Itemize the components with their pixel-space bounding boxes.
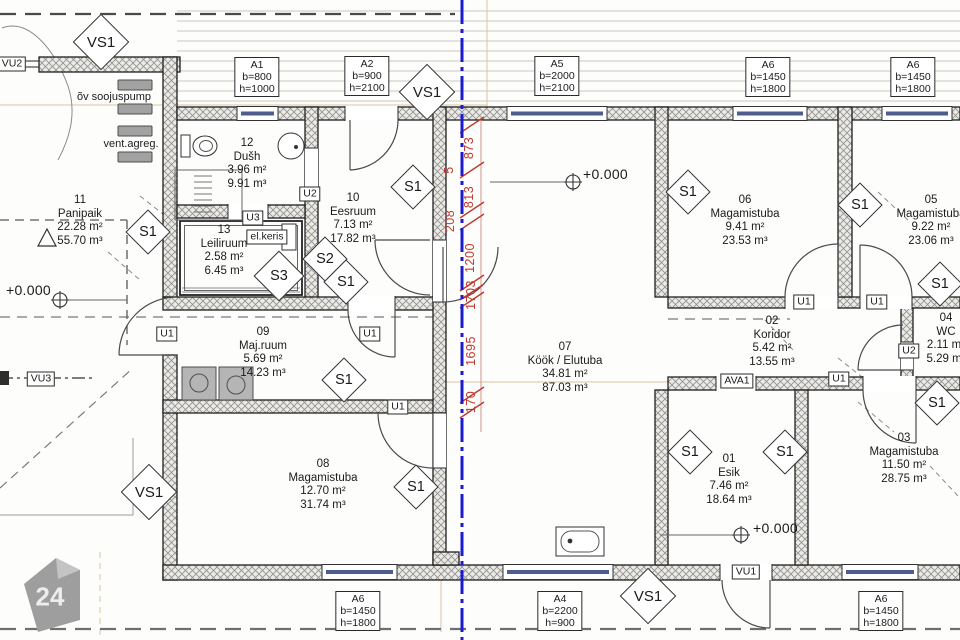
room-volume: 5.29 m³ xyxy=(927,353,960,367)
window-height: h=1800 xyxy=(863,617,898,629)
room-number: 10 xyxy=(330,192,376,206)
window-code: A6 xyxy=(340,593,375,605)
room-name: Magamistuba xyxy=(869,446,938,460)
room-area: 2.58 m² xyxy=(201,251,248,265)
room-number: 12 xyxy=(228,137,267,151)
room-name: Leiliruum xyxy=(201,238,248,252)
sauna-heater-label: el.keris xyxy=(246,230,287,245)
room-volume: 13.55 m³ xyxy=(749,356,794,370)
door-tag-u1-eesruum: U1 xyxy=(359,327,380,342)
door-tag-u1-west: U1 xyxy=(156,327,177,342)
room-number: 08 xyxy=(288,458,357,472)
window-tag-a1: A1 b=800 h=1000 xyxy=(234,57,279,97)
room-name: Koridor xyxy=(749,329,794,343)
room-name: Magamistuba xyxy=(896,208,960,222)
room-volume: 28.75 m³ xyxy=(869,473,938,487)
dimension-813: 813 xyxy=(462,186,476,208)
window-height: h=900 xyxy=(542,617,577,629)
room-name: Dušh xyxy=(228,151,267,165)
duct-tag-vu3: VU3 xyxy=(27,372,55,387)
room-label-kook-elutuba: 07 Köök / Elutuba 34.81 m² 87.03 m³ xyxy=(528,341,603,395)
door-tag-u1-koridor-05: U1 xyxy=(866,295,887,310)
room-label-wc: 04 WC 2.11 m² 5.29 m³ xyxy=(927,312,960,366)
window-height: h=2100 xyxy=(349,82,384,94)
dimension-lines xyxy=(460,117,484,432)
room-area: 7.13 m² xyxy=(330,219,376,233)
toilet-icon xyxy=(181,135,217,157)
door-tag-u1-koridor-03: U1 xyxy=(828,372,849,387)
room-area: 22.28 m² xyxy=(57,221,102,235)
window-code: A1 xyxy=(239,59,274,71)
room-number: 07 xyxy=(528,341,603,355)
room-label-leiliruum: 13 Leiliruum 2.58 m² 6.45 m³ xyxy=(201,224,248,278)
room-area: 9.22 m² xyxy=(896,221,960,235)
room-number: 01 xyxy=(706,453,751,467)
room-name: Panipaik xyxy=(57,208,102,222)
dimension-873: 873 xyxy=(462,137,476,159)
room-name: Maj.ruum xyxy=(239,340,287,354)
window-width: b=2000 xyxy=(539,70,574,82)
window-code: A6 xyxy=(863,593,898,605)
door-tag-u1-majruum: U1 xyxy=(387,400,408,415)
elevation-label: +0.000 xyxy=(753,520,798,536)
window-height: h=1800 xyxy=(750,83,785,95)
room-area: 11.50 m² xyxy=(869,459,938,473)
door-tag-u1-koridor-06: U1 xyxy=(793,295,814,310)
window-tag-a4: A4 b=2200 h=900 xyxy=(537,591,582,631)
dimension-1695: 1695 xyxy=(464,336,478,366)
window-height: h=2100 xyxy=(539,82,574,94)
room-volume: 9.91 m³ xyxy=(228,178,267,192)
room-number: 13 xyxy=(201,224,248,238)
dimension-5: 5 xyxy=(442,166,456,173)
room-number: 02 xyxy=(749,315,794,329)
window-width: b=900 xyxy=(349,70,384,82)
room-area: 2.11 m² xyxy=(927,339,960,353)
room-label-magamistuba-06: 06 Magamistuba 9.41 m² 23.53 m³ xyxy=(710,194,779,248)
panipaik-triangle xyxy=(38,229,56,246)
dimension-1703: 1703 xyxy=(464,280,478,310)
room-number: 03 xyxy=(869,432,938,446)
window-code: A5 xyxy=(539,58,574,70)
room-name: Magamistuba xyxy=(288,472,357,486)
door-tag-u2-dush: U2 xyxy=(299,187,320,202)
room-label-esik: 01 Esik 7.46 m² 18.64 m³ xyxy=(706,453,751,507)
shower-icon xyxy=(278,133,304,159)
room-label-panipaik: 11 Panipaik 22.28 m² 55.70 m³ xyxy=(57,194,102,248)
elevation-label: +0.000 xyxy=(583,166,628,182)
kitchen-sink-icon xyxy=(556,527,604,556)
room-area: 7.46 m² xyxy=(706,480,751,494)
window-width: b=1450 xyxy=(895,71,930,83)
room-volume: 55.70 m³ xyxy=(57,235,102,249)
window-tag-a6-bottom-left: A6 b=1450 h=1800 xyxy=(335,591,380,631)
room-number: 11 xyxy=(57,194,102,208)
window-code: A2 xyxy=(349,58,384,70)
room-name: Esik xyxy=(706,467,751,481)
room-label-majruum: 09 Maj.ruum 5.69 m² 14.23 m³ xyxy=(239,326,287,380)
room-area: 5.69 m² xyxy=(239,353,287,367)
room-label-magamistuba-05: 05 Magamistuba 9.22 m² 23.06 m³ xyxy=(896,194,960,248)
room-number: 05 xyxy=(896,194,960,208)
window-tag-a2: A2 b=900 h=2100 xyxy=(344,56,389,96)
room-area: 34.81 m² xyxy=(528,368,603,382)
heat-pump-label: õv soojuspump xyxy=(77,91,151,103)
window-code: A6 xyxy=(895,59,930,71)
vent-unit-label: vent.agreg. xyxy=(103,138,158,150)
duct-tag-vu2: VU2 xyxy=(0,57,26,72)
room-label-eesruum: 10 Eesruum 7.13 m² 17.82 m³ xyxy=(330,192,376,246)
window-height: h=1800 xyxy=(340,617,375,629)
window-height: h=1800 xyxy=(895,83,930,95)
dimension-170: 170 xyxy=(464,391,478,413)
room-label-koridor: 02 Koridor 5.42 m² 13.55 m³ xyxy=(749,315,794,369)
window-tag-a6-bottom-right: A6 b=1450 h=1800 xyxy=(858,591,903,631)
room-number: 06 xyxy=(710,194,779,208)
room-area: 3.96 m² xyxy=(228,164,267,178)
room-name: WC xyxy=(927,326,960,340)
window-width: b=1450 xyxy=(750,71,785,83)
room-area: 12.70 m² xyxy=(288,485,357,499)
window-code: A4 xyxy=(542,593,577,605)
window-code: A6 xyxy=(750,59,785,71)
dimension-1200: 1200 xyxy=(463,243,477,273)
room-volume: 14.23 m³ xyxy=(239,367,287,381)
window-tag-a6-top-right: A6 b=1450 h=1800 xyxy=(890,57,935,97)
duct-tag-vu1: VU1 xyxy=(732,565,760,580)
window-width: b=1450 xyxy=(340,605,375,617)
door-tag-u3: U3 xyxy=(242,211,263,226)
room-volume: 6.45 m³ xyxy=(201,265,248,279)
opening-tag-ava1: AVA1 xyxy=(720,374,753,389)
window-tag-a6-top-left: A6 b=1450 h=1800 xyxy=(745,57,790,97)
room-name: Köök / Elutuba xyxy=(528,355,603,369)
door-tag-u2-wc: U2 xyxy=(898,344,919,359)
room-label-dush: 12 Dušh 3.96 m² 9.91 m³ xyxy=(228,137,267,191)
room-volume: 18.64 m³ xyxy=(706,494,751,508)
window-tag-a5: A5 b=2000 h=2100 xyxy=(534,56,579,96)
window-width: b=1450 xyxy=(863,605,898,617)
elevation-label: +0.000 xyxy=(6,282,51,298)
duct-connectors xyxy=(0,61,39,385)
room-volume: 23.06 m³ xyxy=(896,235,960,249)
room-number: 09 xyxy=(239,326,287,340)
window-height: h=1000 xyxy=(239,83,274,95)
logo-24: 24 xyxy=(36,582,65,613)
window-width: b=2200 xyxy=(542,605,577,617)
room-area: 5.42 m² xyxy=(749,342,794,356)
walls xyxy=(39,57,960,580)
window-width: b=800 xyxy=(239,71,274,83)
dimension-208: 208 xyxy=(443,210,457,232)
room-volume: 31.74 m³ xyxy=(288,499,357,513)
room-name: Eesruum xyxy=(330,206,376,220)
room-label-magamistuba-03: 03 Magamistuba 11.50 m² 28.75 m³ xyxy=(869,432,938,486)
floor-plan: 12 Dušh 3.96 m² 9.91 m³ 13 Leiliruum 2.5… xyxy=(0,0,960,640)
room-volume: 87.03 m³ xyxy=(528,382,603,396)
room-label-magamistuba-08: 08 Magamistuba 12.70 m² 31.74 m³ xyxy=(288,458,357,512)
room-number: 04 xyxy=(927,312,960,326)
room-area: 9.41 m² xyxy=(710,221,779,235)
room-name: Magamistuba xyxy=(710,208,779,222)
room-volume: 23.53 m³ xyxy=(710,235,779,249)
